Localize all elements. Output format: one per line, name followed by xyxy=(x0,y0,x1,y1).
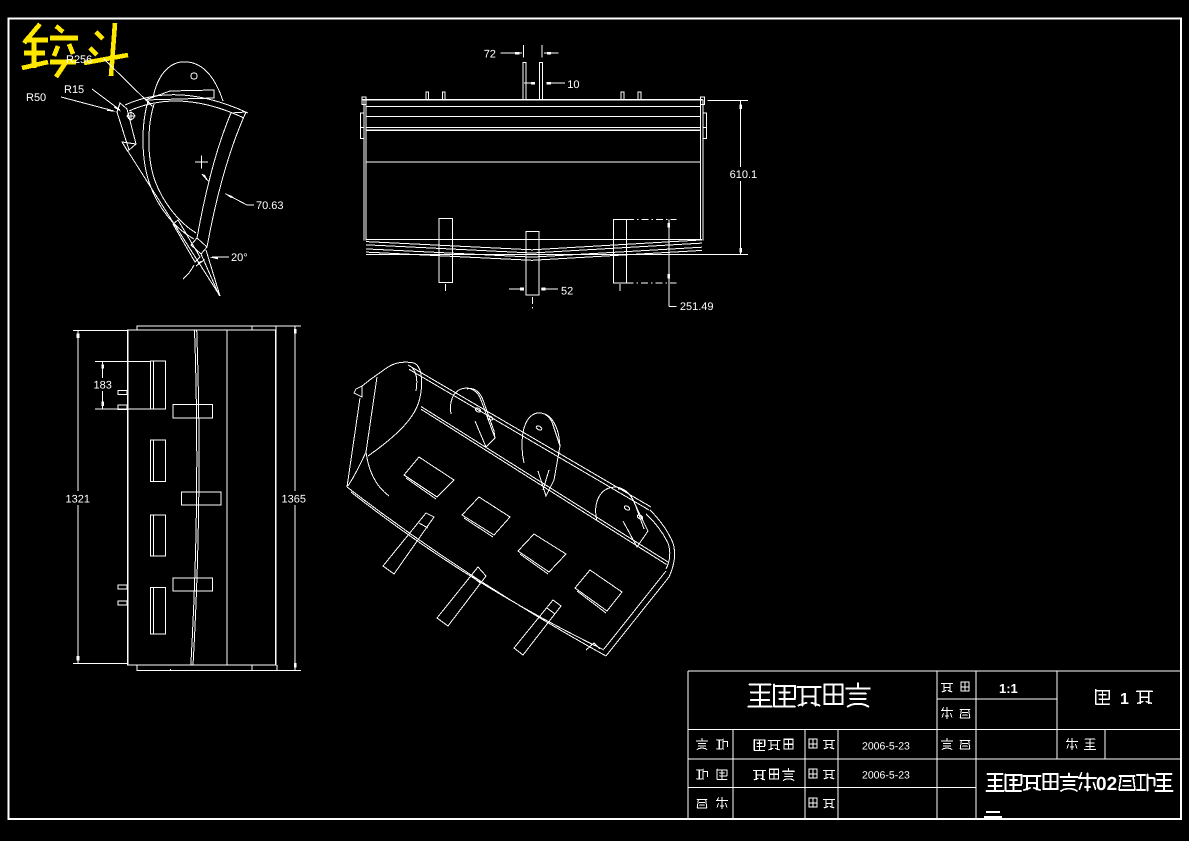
svg-text:610.1: 610.1 xyxy=(730,169,758,181)
svg-text:251.49: 251.49 xyxy=(680,301,714,313)
svg-text:02: 02 xyxy=(1096,774,1117,795)
svg-text:R256: R256 xyxy=(66,54,92,66)
svg-text:R50: R50 xyxy=(26,92,46,104)
svg-text:20°: 20° xyxy=(231,252,248,264)
svg-text:1:1: 1:1 xyxy=(999,681,1018,696)
svg-text:1321: 1321 xyxy=(66,494,90,506)
svg-text:72: 72 xyxy=(484,48,496,60)
svg-text:183: 183 xyxy=(94,380,112,392)
svg-text:2006-5-23: 2006-5-23 xyxy=(862,741,910,753)
svg-text:52: 52 xyxy=(561,286,573,298)
svg-text:1365: 1365 xyxy=(282,494,306,506)
svg-text:10: 10 xyxy=(567,79,579,91)
svg-text:2006-5-23: 2006-5-23 xyxy=(862,770,910,782)
svg-text:1: 1 xyxy=(1120,691,1129,708)
svg-text:70.63: 70.63 xyxy=(256,200,284,212)
svg-text:R15: R15 xyxy=(64,84,84,96)
